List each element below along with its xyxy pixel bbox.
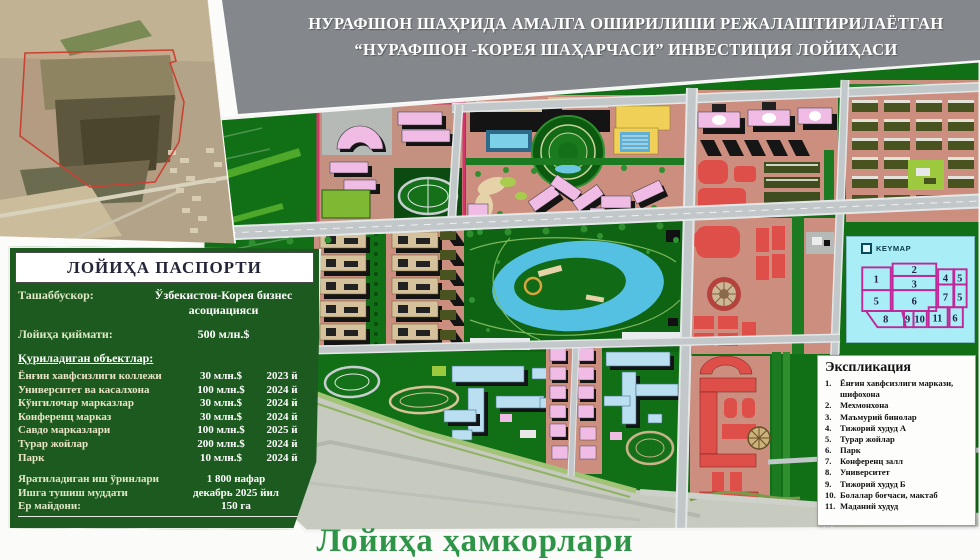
keymap-label: KEYMAP: [876, 244, 911, 253]
legend-item: 11.Маданий худуд: [825, 501, 970, 512]
legend-item: 1.Ёнғин хавфсизлиги маркази, шифохона: [825, 378, 970, 400]
project-passport-panel: ЛОЙИҲА ПАСПОРТИ Ташаббускор: Ўзбекистон-…: [8, 246, 321, 530]
legend-item: 9.Тижорий худуд Б: [825, 479, 970, 490]
legend-item: 4.Тижорий худуд А: [825, 423, 970, 434]
object-row: Савдо марказлари 100 млн.$ 2025 й: [18, 424, 311, 438]
keymap-zone: 9: [905, 314, 910, 325]
satellite-photo: [0, 0, 236, 246]
slide-title-line2: “НУРАФШОН -КОРЕЯ ШАҲАРЧАСИ” ИНВЕСТИЦИЯ Л…: [278, 37, 974, 63]
map-block-college: [318, 103, 464, 225]
passport-footer: Яратиладиган иш ўринлари 1 800 нафар Ишг…: [18, 473, 311, 517]
slide-title-line1: НУРАФШОН ШАҲРИДА АМАЛГА ОШИРИЛИШИ РЕЖАЛА…: [278, 11, 974, 37]
map-block-red-east: [692, 214, 840, 354]
object-row: Университет ва касалхона 100 млн.$ 2024 …: [18, 384, 311, 398]
keymap-square-icon: [861, 243, 872, 254]
objects-table: Ёнғин хавфсизлиги коллежи 30 млн.$ 2023 …: [10, 369, 319, 465]
initiator-label: Ташаббускор:: [18, 288, 136, 303]
slide-title: НУРАФШОН ШАҲРИДА АМАЛГА ОШИРИЛИШИ РЕЖАЛА…: [278, 11, 974, 62]
keymap-zone: 5: [874, 296, 879, 307]
legend-title: Экспликация: [825, 360, 970, 376]
legend-item: 2.Мехмонхона: [825, 400, 970, 411]
legend-item: 7.Конференц залл: [825, 456, 970, 467]
legend-item: 8.Университет: [825, 467, 970, 478]
initiator-row: Ташаббускор: Ўзбекистон-Корея бизнес асо…: [10, 288, 319, 318]
keymap-zone: 6: [952, 313, 957, 324]
keymap-zone: 5: [957, 274, 962, 285]
object-row: Парк 10 млн.$ 2024 й: [18, 452, 311, 466]
map-park: [464, 220, 690, 352]
passport-header: ЛОЙИҲА ПАСПОРТИ: [15, 252, 314, 283]
cost-label: Лойиҳа қиймати:: [18, 327, 136, 342]
keymap-zone: 7: [943, 293, 948, 304]
keymap-zone: 1: [874, 275, 879, 286]
keymap-header: KEYMAP: [861, 243, 968, 254]
legend-item: 3.Маъмурий бинолар: [825, 412, 970, 423]
cost-row: Лойиҳа қиймати: 500 млн.$: [10, 327, 319, 342]
legend-item: 5.Турар жойлар: [825, 434, 970, 445]
slide: { "title": { "line1": "НУРАФШОН ШАҲРИДА …: [0, 0, 980, 551]
keymap-zone: 8: [883, 314, 888, 325]
partners-heading: Лойиҳа ҳамкорлари: [285, 523, 665, 560]
legend-item: 6.Парк: [825, 445, 970, 456]
object-row: Турар жойлар 200 млн.$ 2024 й: [18, 438, 311, 452]
object-row: Ёнғин хавфсизлиги коллежи 30 млн.$ 2023 …: [18, 370, 311, 384]
cost-value: 500 млн.$: [136, 327, 311, 342]
legend-panel: Экспликация 1.Ёнғин хавфсизлиги маркази,…: [817, 355, 976, 526]
objects-label: Қуриладиган объектлар:: [18, 351, 311, 366]
keymap-zone: 2: [912, 265, 917, 276]
legend-list: 1.Ёнғин хавфсизлиги маркази, шифохона 2.…: [825, 378, 970, 512]
map-block-residential-west: [314, 228, 466, 348]
keymap-zone: 4: [943, 274, 949, 285]
object-row: Конференц марказ 30 млн.$ 2024 й: [18, 411, 311, 425]
footer-row: Яратиладиган иш ўринлари 1 800 нафар: [18, 473, 311, 487]
map-block-plaza: [466, 95, 688, 222]
keymap-zone: 10: [914, 314, 924, 325]
map-block-hotels: [694, 90, 838, 216]
footer-row: Ишга тушиш муддати декабрь 2025 йил: [18, 487, 311, 501]
initiator-value: Ўзбекистон-Корея бизнес асоциацияси: [136, 288, 311, 318]
legend-item: 10.Болалар боғчаси, мактаб: [825, 490, 970, 501]
object-row: Кўнгилочар марказлар 30 млн.$ 2024 й: [18, 397, 311, 411]
keymap-zone: 3: [912, 279, 917, 290]
keymap-panel: KEYMAP 1 2 3 4 5 5 6 7 5 8 9 10 11: [846, 236, 975, 343]
keymap-zone: 6: [912, 296, 917, 307]
keymap-zone: 5: [957, 293, 962, 304]
map-block-red-complex: [690, 352, 790, 512]
keymap-zone: 11: [932, 313, 942, 324]
keymap-diagram: 1 2 3 4 5 5 6 7 5 8 9 10 11 6: [855, 256, 972, 330]
footer-row: Ер майдони: 150 га: [18, 500, 311, 514]
